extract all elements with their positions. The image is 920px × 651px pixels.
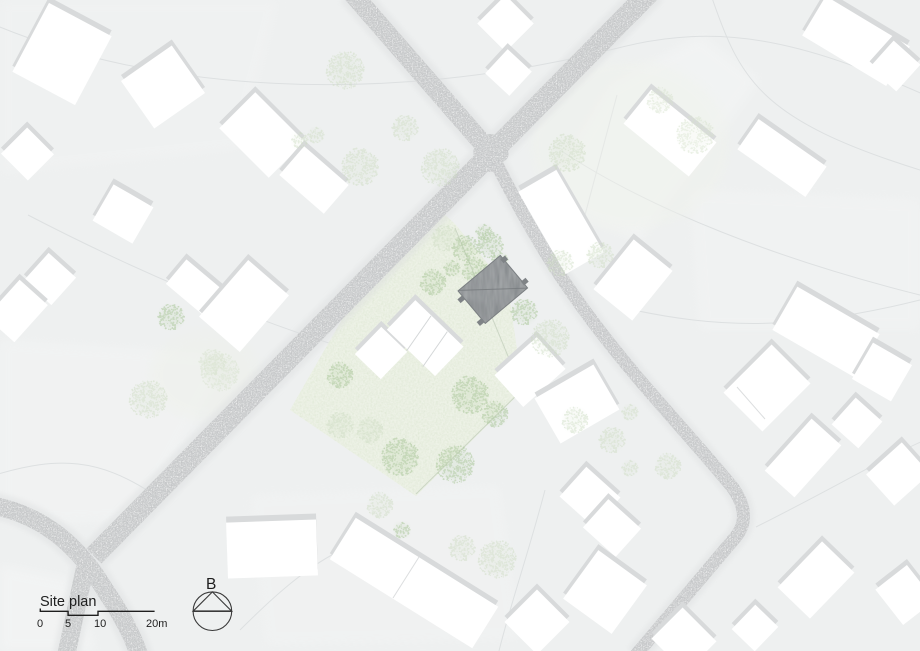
svg-text:5: 5: [65, 618, 71, 630]
svg-text:0: 0: [37, 618, 43, 630]
svg-text:Site plan: Site plan: [40, 594, 96, 610]
svg-text:20m: 20m: [146, 618, 167, 630]
svg-text:10: 10: [94, 618, 106, 630]
svg-text:B: B: [206, 576, 216, 593]
